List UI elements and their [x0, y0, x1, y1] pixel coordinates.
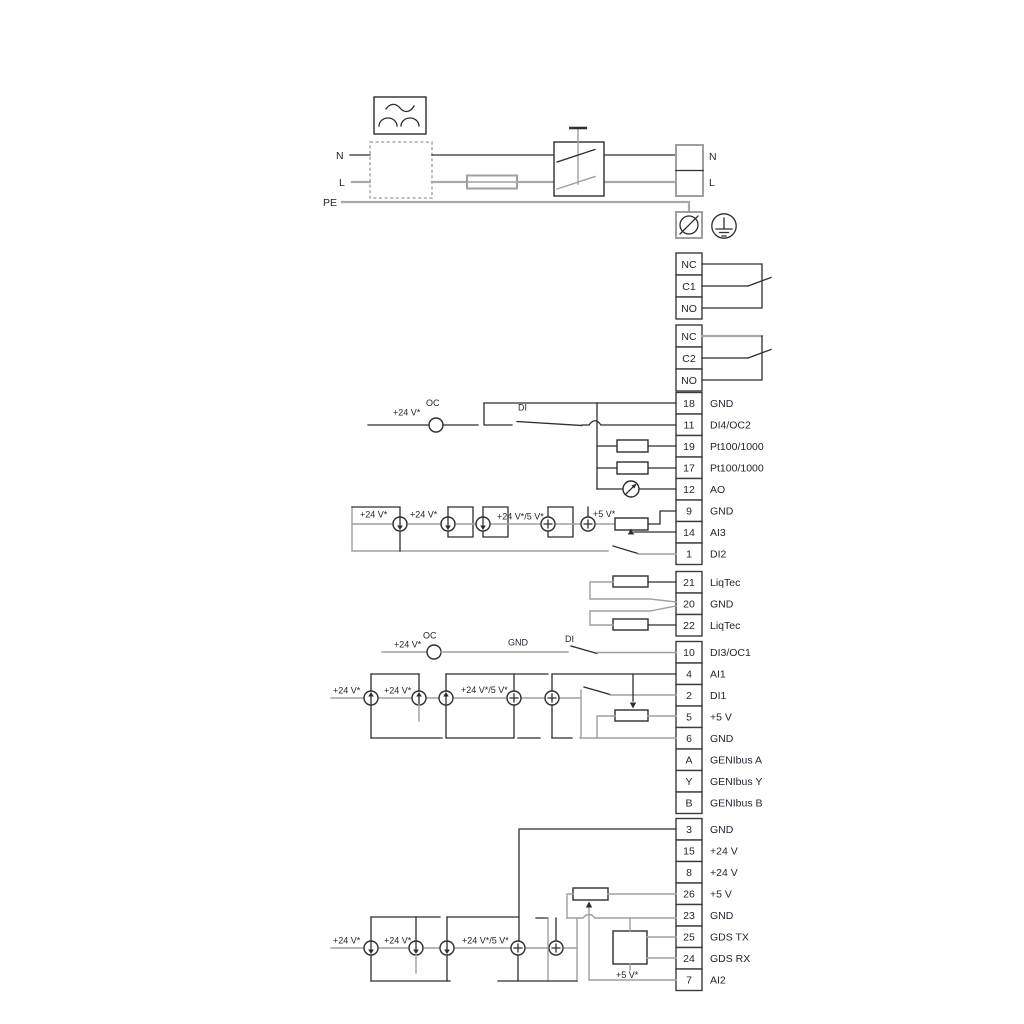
terminal-label: GND	[710, 506, 734, 518]
liqtec-sensor-circuit	[590, 576, 676, 630]
terminal-label: DI1	[710, 690, 727, 702]
gnd-label: GND	[508, 638, 529, 648]
voltage-source-icon	[545, 691, 559, 705]
wiper-arrow-icon	[630, 703, 636, 709]
wiring-diagram-page: N L PE N L	[0, 0, 1024, 1024]
pe-screw-terminal-icon	[676, 212, 702, 238]
terminal-label: +5 V	[710, 889, 732, 901]
di1-switch-blade	[584, 687, 610, 695]
terminal-number: A	[685, 755, 692, 767]
v5-label: +5 V*	[616, 970, 639, 980]
terminal-number: 25	[683, 932, 695, 944]
terminal-number: 11	[684, 420, 695, 432]
relay1-c: C1	[682, 281, 696, 293]
terminal-label: +5 V	[710, 712, 732, 724]
terminal-label: GDS TX	[710, 932, 749, 944]
terminal-number: 6	[686, 733, 692, 745]
gds-module-box	[613, 918, 676, 970]
relay2-wires	[702, 336, 762, 380]
terminal-group-2: 21LiqTec 20GND 22LiqTec	[676, 572, 740, 637]
current-source-icon	[393, 517, 407, 531]
terminal-label: GENIbus Y	[710, 776, 762, 788]
terminal-number: 4	[686, 669, 692, 681]
relay2-no: NO	[681, 375, 697, 387]
terminal-number: 17	[683, 463, 695, 475]
current-source-icon	[364, 941, 378, 955]
gnd23-wire	[567, 915, 676, 919]
terminal-label: +24 V	[710, 867, 738, 879]
oc-output-icon	[429, 418, 443, 432]
liqtec-sensor-2	[613, 619, 648, 630]
current-source-icon	[439, 691, 453, 705]
v24-label: +24 V*	[384, 936, 412, 946]
label-n-right: N	[709, 151, 717, 163]
v24-5v-label: +24 V*/5 V*	[497, 512, 544, 522]
terminal-label: GND	[710, 824, 734, 836]
terminal-label: GENIbus B	[710, 798, 763, 810]
v24-label: +24 V*	[333, 686, 361, 696]
terminal-number: Y	[685, 776, 692, 788]
terminal-number: 18	[683, 398, 695, 410]
relay1-wires	[702, 264, 762, 308]
supply-terminal-block: N L	[676, 145, 717, 196]
terminal-number: 9	[686, 506, 692, 518]
liqtec-sensor-1	[613, 576, 648, 587]
ao-meter-icon	[623, 481, 639, 497]
current-source-icon	[364, 691, 378, 705]
gnd3-wire	[519, 829, 676, 941]
terminal-number: 22	[683, 620, 695, 632]
terminal-label: +24 V	[710, 846, 738, 858]
voltage-source-icon	[507, 691, 521, 705]
terminal-number: 14	[683, 527, 695, 539]
v24-label: +24 V*	[394, 640, 422, 650]
terminal-label: GENIbus A	[710, 755, 762, 767]
terminal-number: 15	[683, 846, 695, 858]
label-l-right: L	[709, 177, 715, 189]
oc-label: OC	[423, 631, 437, 641]
earth-ground-icon	[712, 214, 736, 238]
ai2-gds-source-circuit: +24 V* +24 V* +24 V*/5 V* +5 V*	[331, 829, 676, 981]
potentiometer-symbol	[615, 511, 676, 535]
di4-oc2-circuit: +24 V* OC DI	[368, 398, 676, 432]
relay2-nc: NC	[681, 331, 697, 343]
pe-wire	[342, 202, 689, 212]
di3-oc1-circuit: +24 V* OC GND DI	[382, 631, 676, 660]
voltage-source-icon	[511, 941, 525, 955]
main-switch	[554, 128, 604, 196]
terminal-number: 24	[683, 953, 695, 965]
terminal-number: 19	[683, 441, 695, 453]
filter-box	[370, 142, 432, 198]
terminal-number: 2	[686, 690, 692, 702]
pt100-ao-circuit	[597, 403, 676, 497]
label-n-left: N	[336, 150, 344, 162]
terminal-label: DI3/OC1	[710, 647, 751, 659]
pt100-resistor-2	[617, 462, 648, 474]
v24-5v-label: +24 V*/5 V*	[461, 685, 508, 695]
mains-supply-symbol	[374, 97, 426, 134]
current-source-icon	[440, 941, 454, 955]
v24-5v-label: +24 V*/5 V*	[462, 936, 509, 946]
current-source-icon	[412, 691, 426, 705]
potentiometer-symbol	[597, 710, 676, 738]
relay1-no: NO	[681, 303, 697, 315]
wiring-diagram: N L PE N L	[0, 0, 1024, 1024]
fuse-symbol	[467, 176, 517, 189]
label-pe-left: PE	[323, 197, 337, 209]
v24-label: +24 V*	[410, 510, 438, 520]
terminal-number: B	[685, 798, 692, 810]
terminal-number: 23	[683, 910, 695, 922]
relay2-contact-blade	[748, 350, 771, 359]
terminal-label: LiqTec	[710, 620, 740, 632]
di-label: DI	[518, 403, 527, 413]
terminal-label: GDS RX	[710, 953, 750, 965]
pt100-resistor-1	[617, 440, 648, 452]
potentiometer-symbol	[567, 888, 676, 918]
relay2-c: C2	[682, 353, 696, 365]
terminal-label: GND	[710, 398, 734, 410]
di2-switch-blade	[613, 546, 638, 554]
oc-label: OC	[426, 398, 440, 408]
relay1-block: NC C1 NO	[676, 253, 771, 319]
terminal-label: Pt100/1000	[710, 463, 764, 475]
terminal-group-4: 3GND 15+24 V 8+24 V 26+5 V 23GND 25GDS T…	[676, 819, 750, 991]
v24-label: +24 V*	[333, 936, 361, 946]
terminal-number: 10	[683, 647, 695, 659]
terminal-label: AI1	[710, 669, 726, 681]
terminal-label: DI4/OC2	[710, 420, 751, 432]
v5-label: +5 V*	[593, 509, 616, 519]
terminal-group-3: 10DI3/OC1 4AI1 2DI1 5+5 V 6GND AGENIbus …	[676, 642, 763, 814]
v24-label: +24 V*	[393, 408, 421, 418]
relay2-block: NC C2 NO	[676, 325, 771, 391]
ai3-di2-source-circuit: +24 V* +24 V* +24 V*/5 V* +5 V*	[352, 507, 676, 554]
terminal-label: AO	[710, 484, 725, 496]
terminal-label: GND	[710, 910, 734, 922]
terminal-number: 5	[686, 712, 692, 724]
voltage-source-icon	[581, 517, 595, 531]
terminal-group-1: 18GND 11DI4/OC2 19Pt100/1000 17Pt100/100…	[676, 393, 764, 565]
v24-label: +24 V*	[384, 686, 412, 696]
label-l-left: L	[339, 177, 345, 189]
power-section: N L PE N L	[323, 97, 736, 238]
oc-output-icon	[427, 645, 441, 659]
current-source-icon	[441, 517, 455, 531]
terminal-number: 3	[686, 824, 692, 836]
wiper-arrow-icon	[586, 902, 592, 908]
terminal-label: AI3	[710, 527, 726, 539]
terminal-number: 1	[686, 549, 692, 561]
terminal-number: 8	[686, 867, 692, 879]
v24-label: +24 V*	[360, 510, 388, 520]
terminal-label: GND	[710, 733, 734, 745]
terminal-number: 7	[686, 975, 692, 987]
voltage-source-icon	[541, 517, 555, 531]
ai1-di1-source-circuit: +24 V* +24 V* +24 V*/5 V*	[331, 674, 676, 738]
voltage-source-icon	[549, 941, 563, 955]
terminal-number: 21	[683, 577, 695, 589]
terminal-number: 20	[683, 599, 695, 611]
terminal-label: DI2	[710, 549, 727, 561]
terminal-label: LiqTec	[710, 577, 740, 589]
terminal-label: AI2	[710, 975, 726, 987]
relay1-nc: NC	[681, 259, 697, 271]
relay1-contact-blade	[748, 278, 771, 287]
di3-switch-blade	[571, 646, 597, 654]
terminal-label: Pt100/1000	[710, 441, 764, 453]
terminal-label: GND	[710, 599, 734, 611]
current-source-icon	[476, 517, 490, 531]
current-source-icon	[409, 941, 423, 955]
terminal-number: 12	[683, 484, 695, 496]
di-label: DI	[565, 634, 574, 644]
di4-switch-blade	[517, 422, 582, 426]
terminal-number: 26	[683, 889, 695, 901]
